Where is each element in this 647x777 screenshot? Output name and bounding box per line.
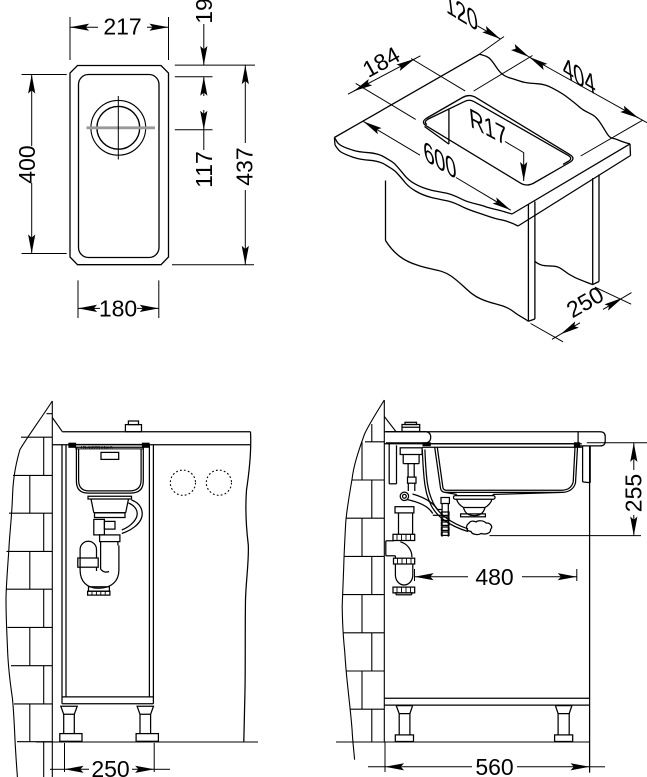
svg-text:437: 437 [232, 147, 258, 185]
svg-text:404: 404 [560, 49, 597, 102]
svg-text:560: 560 [475, 754, 513, 777]
svg-text:250: 250 [91, 756, 129, 777]
svg-text:250: 250 [562, 281, 608, 323]
svg-text:120: 120 [443, 0, 480, 38]
svg-text:480: 480 [475, 564, 513, 590]
svg-text:255: 255 [621, 474, 647, 512]
svg-text:217: 217 [103, 14, 141, 40]
svg-text:400: 400 [14, 145, 40, 183]
svg-text:180: 180 [99, 296, 137, 322]
svg-text:19: 19 [191, 0, 217, 24]
svg-text:117: 117 [191, 151, 217, 188]
svg-text:1 BLANCOCULINA-S: 1 BLANCOCULINA-S [81, 445, 113, 450]
svg-text:184: 184 [358, 41, 404, 82]
